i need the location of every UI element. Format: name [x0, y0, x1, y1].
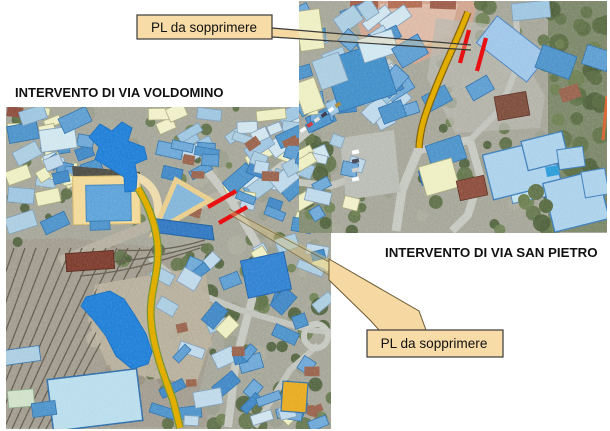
svg-text:PL da sopprimere: PL da sopprimere [151, 20, 257, 35]
svg-text:INTERVENTO DI VIA SAN PIETRO: INTERVENTO DI VIA SAN PIETRO [385, 245, 598, 260]
svg-text:PL da sopprimere: PL da sopprimere [381, 336, 488, 351]
svg-text:INTERVENTO DI VIA VOLDOMINO: INTERVENTO DI VIA VOLDOMINO [15, 85, 224, 100]
